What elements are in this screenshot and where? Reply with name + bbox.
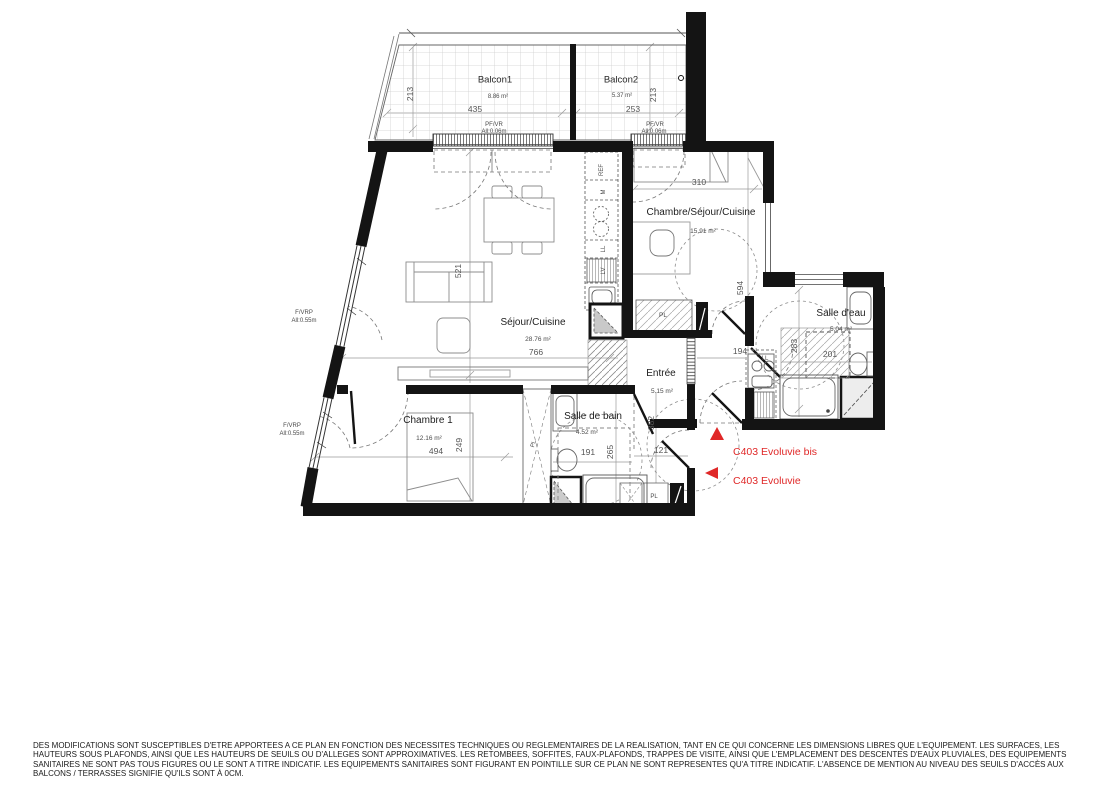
room-sejour-height: 521 <box>454 264 463 278</box>
room-studio-name: Chambre/Séjour/Cuisine <box>647 208 756 218</box>
dishwasher-label: LV <box>601 268 607 275</box>
balcony2-depth: 213 <box>649 88 658 102</box>
balcony2-name: Balcon2 <box>604 75 638 85</box>
room-sejour-area: 28.76 m² <box>525 337 551 344</box>
room-sdb-area: 4.52 m² <box>576 430 598 437</box>
balcony2-opening: PF/VR <box>646 122 664 128</box>
room-sejour-width: 766 <box>529 348 543 357</box>
room-salledeau-height: 283 <box>790 339 799 353</box>
room-entree-width: 121 <box>654 446 668 455</box>
microwave-label: M <box>601 190 607 195</box>
window2-label: F/VRP <box>283 423 301 429</box>
entry-sidelight <box>687 338 695 384</box>
studio-washer-label: LL <box>762 356 769 362</box>
balcony2-area: 5.37 m² <box>612 93 632 99</box>
balcony1-depth: 213 <box>406 87 415 101</box>
balcony1-area: 8.86 m² <box>488 94 508 100</box>
room-studio-area: 15.91 m² <box>690 229 716 236</box>
balcony2-width: 253 <box>626 105 640 114</box>
unit-bis-arrow-icon <box>710 427 724 440</box>
room-sdb-name: Salle de bain <box>564 412 622 422</box>
room-chambre1-width: 494 <box>429 447 443 456</box>
floor-plan-page: Balcon1 8.86 m² 435 213 PF/VR All:0.06m … <box>0 0 1120 800</box>
disclaimer-line-1: DES MODIFICATIONS SONT SUSCEPTIBLES D'ET… <box>33 741 1113 750</box>
room-chambre1-name: Chambre 1 <box>403 416 452 426</box>
window2-sill: All:0.55m <box>279 431 304 437</box>
room-entree-height: 382 <box>647 416 656 430</box>
balcony2-sill: All:0.06m <box>641 129 666 135</box>
floor-plan-drawing <box>0 0 1120 800</box>
door-swings <box>318 150 793 468</box>
disclaimer-line-2: HAUTEURS SOUS PLAFONDS, AINSI QUE LES HA… <box>33 750 1113 759</box>
balcony1-name: Balcon1 <box>478 75 512 85</box>
washer-label: LL <box>601 246 607 253</box>
unit-bis-label: C403 Evoluvie bis <box>733 447 817 458</box>
window1-sill: All:0.55m <box>291 318 316 324</box>
room-entree-area: 5.15 m² <box>651 389 673 396</box>
room-entree-side: 194 <box>733 347 747 356</box>
balcony1-sill: All:0.06m <box>481 129 506 135</box>
room-studio-width: 310 <box>692 178 706 187</box>
room-sejour-name: Séjour/Cuisine <box>500 318 565 328</box>
disclaimer-line-3: SANITAIRES NE SONT PAS TOUS FIGURES OU L… <box>33 760 1113 769</box>
fridge-label: REF <box>599 164 605 176</box>
studio-closet-label: PL <box>659 313 667 320</box>
balcony-area <box>369 29 686 146</box>
room-sdb-height: 265 <box>606 445 615 459</box>
room-salledeau-area: 5.04 m² <box>830 327 852 334</box>
balcony1-width: 435 <box>468 105 482 114</box>
room-entree-name: Entrée <box>646 369 675 379</box>
unit-main-arrow-icon <box>705 467 718 479</box>
entry-closet-label: PL <box>650 494 657 500</box>
room-chambre1-height: 249 <box>455 438 464 452</box>
disclaimer: DES MODIFICATIONS SONT SUSCEPTIBLES D'ET… <box>33 741 1113 779</box>
room-sdb-width: 191 <box>581 448 595 457</box>
room-salledeau-name: Salle d'eau <box>816 309 865 319</box>
window1-label: F/VRP <box>295 310 313 316</box>
disclaimer-line-4: BALCONS / TERRASSES SIGNIFIE QU'ILS SONT… <box>33 769 1113 778</box>
room-studio-height: 594 <box>736 281 745 295</box>
wall-openings <box>433 145 843 285</box>
room-chambre1-area: 12.16 m² <box>416 436 442 443</box>
balcony1-opening: PF/VR <box>485 122 503 128</box>
room-salledeau-width: 201 <box>823 350 837 359</box>
unit-main-label: C403 Evoluvie <box>733 476 801 487</box>
